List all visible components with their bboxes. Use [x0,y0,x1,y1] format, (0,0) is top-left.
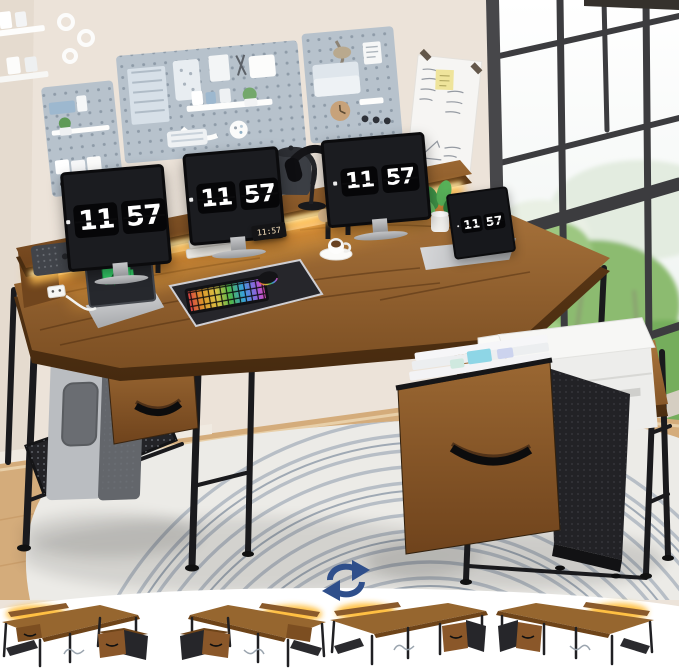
monitor-left-screen: 11 57 [60,164,172,273]
flip-clock-hours: 11 [73,201,119,238]
mini-desk-straight-config [330,602,488,664]
flip-clock-hours: 11 [195,181,237,214]
laptop-screen: 11 57 [446,186,517,260]
flip-clock: 11 57 [332,162,419,197]
flip-clock-minutes: 57 [121,197,167,234]
flip-clock-dot [457,225,459,227]
thumbnail-straight-desk-hutch-right[interactable] [492,594,656,670]
flip-clock-minutes: 57 [381,162,420,193]
flip-clock-dot [333,181,337,185]
flip-clock-minutes: 57 [239,177,281,210]
mini-desk-l-config-mirrored [180,603,326,666]
mini-desk-straight-config-mirrored [496,602,654,664]
sticky-note [435,69,454,90]
monitor-right-screen: 11 57 [320,132,431,229]
thumbnail-l-desk-hutch-left[interactable] [0,594,164,670]
monitor-left: 11 57 [60,164,172,273]
desk-power-outlet [47,285,65,298]
pegboard-panel-3 [301,26,402,144]
flip-clock-dot [189,198,193,202]
flip-clock: 11 57 [456,212,505,234]
product-image: 11 57 11 57 11 57 [0,0,679,672]
mini-desk-l-config [2,603,148,666]
flip-clock-minutes: 57 [483,212,506,231]
configuration-thumbnails [0,592,679,672]
flip-clock-hours: 11 [340,166,379,197]
swap-arrows-icon [318,556,374,604]
flip-clock-dot [66,220,70,224]
pegboard-panel-2 [116,40,307,163]
flip-clock: 11 57 [65,197,167,239]
thumbnail-l-desk-hutch-right[interactable] [164,594,328,670]
room-scene [0,0,679,600]
flip-clock-hours: 11 [460,215,483,234]
thumbnail-straight-desk-hutch-left[interactable] [328,594,492,670]
flip-clock: 11 57 [187,177,280,215]
monitor-right: 11 57 [320,132,431,229]
